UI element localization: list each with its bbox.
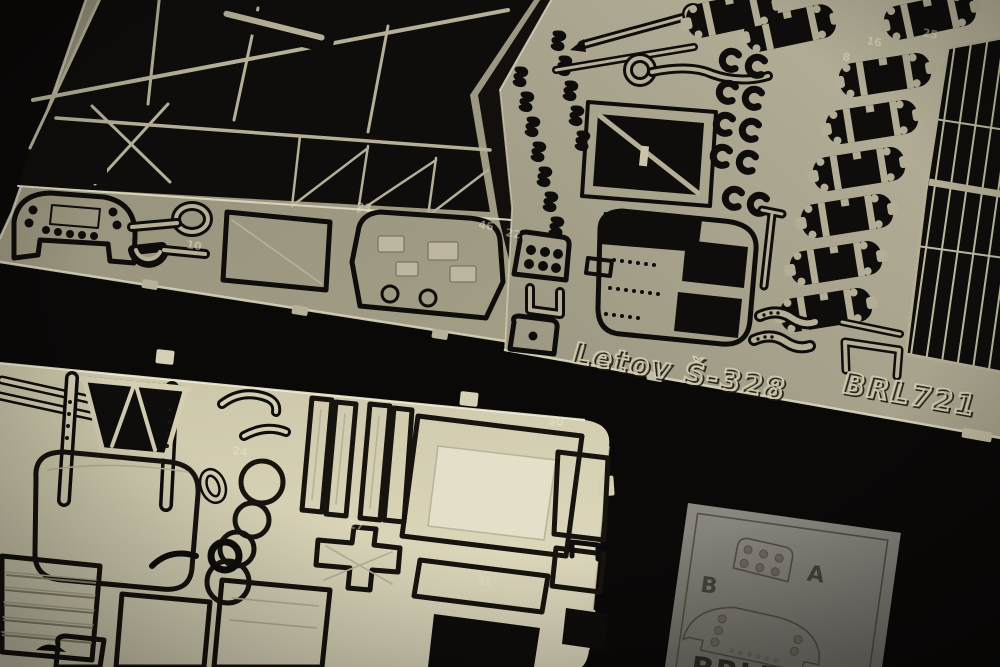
photo-canvas: 23 46 10 (0, 0, 1000, 667)
vignette-overlay (0, 0, 1000, 667)
photo-etched-fret-photo: 23 46 10 (0, 0, 1000, 667)
